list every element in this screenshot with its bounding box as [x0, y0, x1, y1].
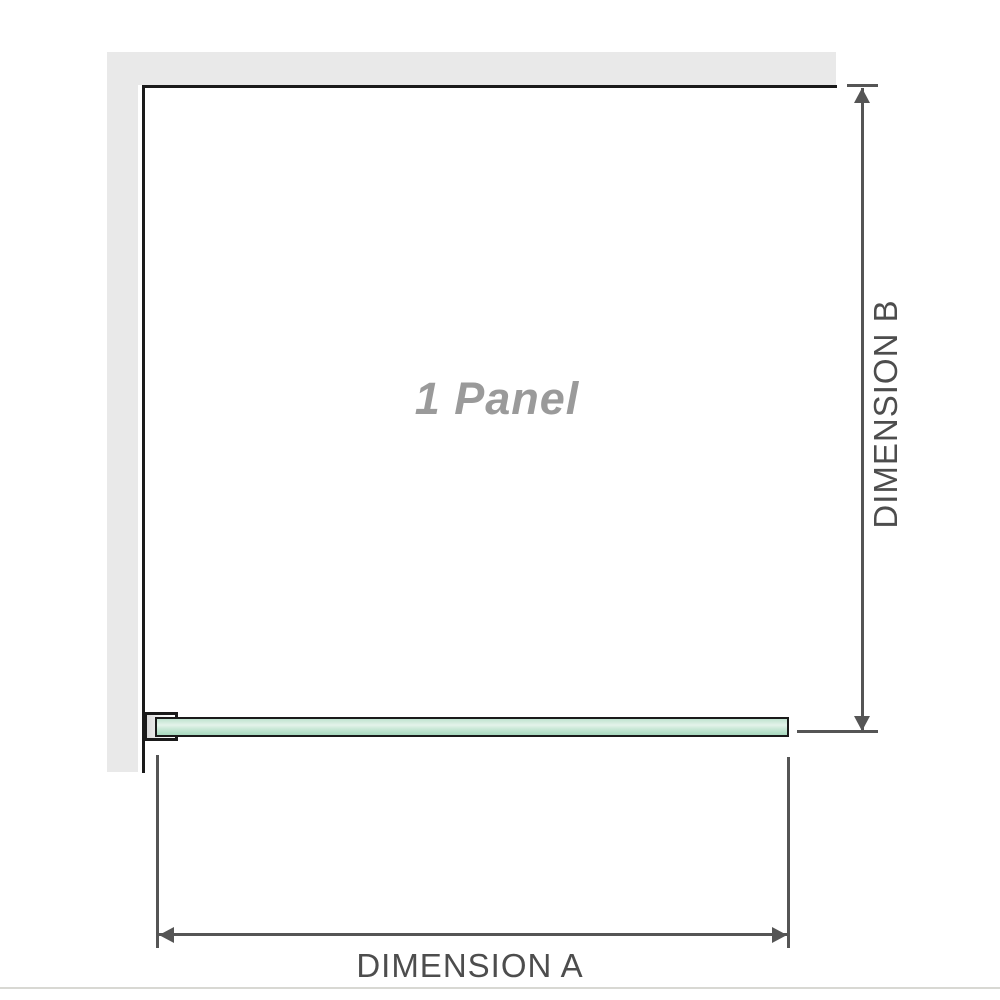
arrow-left-icon — [159, 927, 174, 943]
arrow-right-icon — [772, 927, 787, 943]
dimension-a-extension-left — [156, 755, 159, 948]
arrow-down-icon — [854, 716, 870, 731]
panel-title: 1 Panel — [415, 373, 580, 425]
glass-panel — [155, 717, 789, 737]
dimension-b-label: DIMENSION B — [867, 299, 905, 528]
wall-top-section — [107, 52, 836, 85]
wall-left-section — [107, 52, 138, 772]
panel-diagram: DIMENSION B DIMENSION A 1 Panel — [0, 0, 1000, 1000]
bottom-separator — [0, 987, 1000, 989]
dimension-b-tick-top — [847, 84, 878, 87]
dimension-b-line — [861, 88, 864, 731]
arrow-up-icon — [854, 88, 870, 103]
dimension-a-line — [159, 933, 787, 936]
dimension-a-extension-right — [787, 757, 790, 948]
dimension-a-label: DIMENSION A — [356, 947, 583, 985]
enclosure-top-edge — [143, 85, 837, 88]
enclosure-left-edge — [142, 85, 145, 773]
